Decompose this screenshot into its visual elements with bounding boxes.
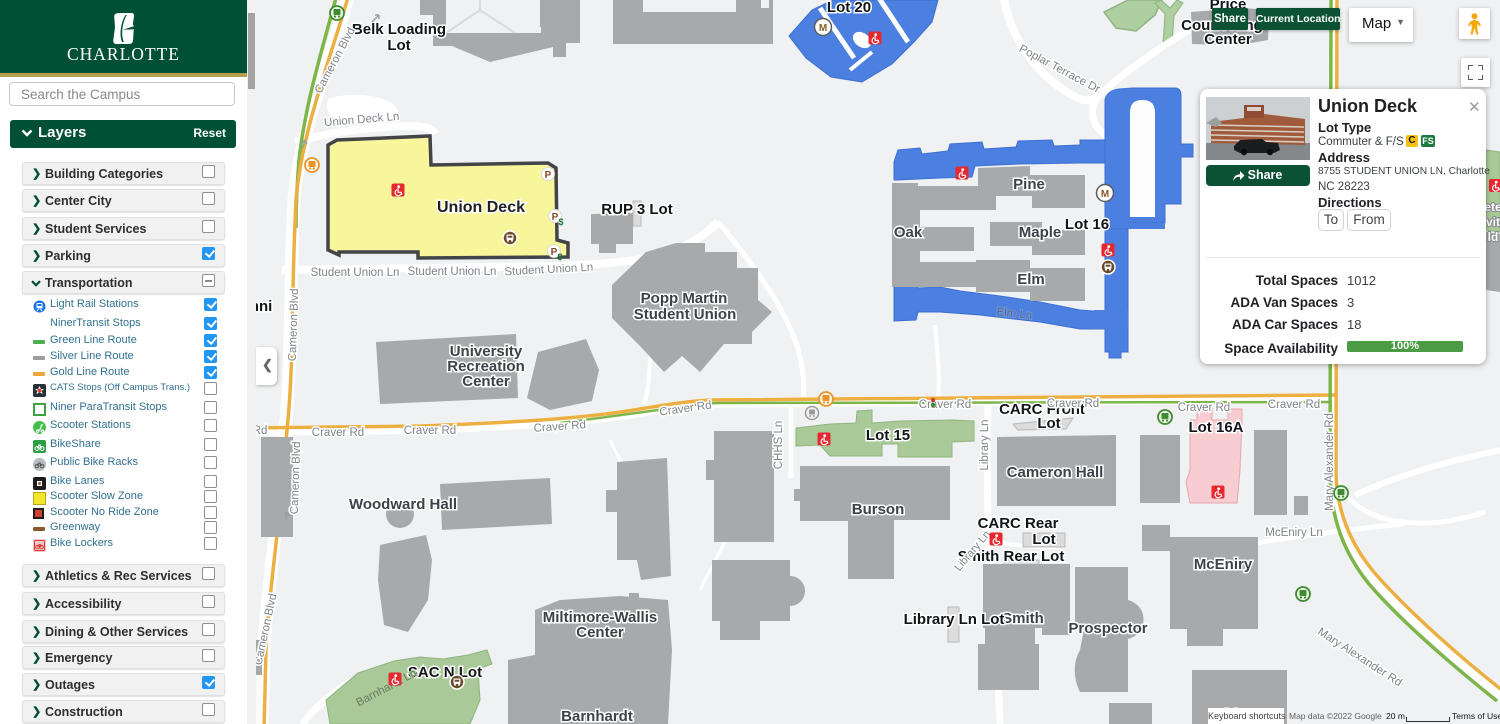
svg-text:Union Deck: Union Deck bbox=[437, 199, 525, 216]
svg-text:Belk Loading: Belk Loading bbox=[352, 21, 446, 38]
svg-text:Lot: Lot bbox=[1037, 415, 1060, 432]
svg-text:Craver Rd: Craver Rd bbox=[1047, 398, 1099, 410]
svg-text:Craver Rd: Craver Rd bbox=[1268, 399, 1320, 411]
svg-text:Cameron Blvd: Cameron Blvd bbox=[289, 441, 304, 514]
svg-text:ete: ete bbox=[1484, 200, 1500, 214]
svg-text:Craver Rd: Craver Rd bbox=[1178, 402, 1230, 414]
svg-text:Library Ln Lot: Library Ln Lot bbox=[904, 611, 1005, 628]
svg-text:Pine: Pine bbox=[1013, 176, 1045, 193]
svg-text:$: $ bbox=[557, 252, 562, 262]
svg-text:Center: Center bbox=[1204, 31, 1252, 48]
svg-text:Cameron Hall: Cameron Hall bbox=[1007, 464, 1104, 481]
svg-text:Lot 15: Lot 15 bbox=[866, 427, 910, 444]
svg-text:Lot 20: Lot 20 bbox=[827, 0, 871, 16]
svg-text:Elm: Elm bbox=[1017, 271, 1045, 288]
svg-text:Popp Martin: Popp Martin bbox=[641, 290, 728, 307]
svg-text:Student Union: Student Union bbox=[634, 306, 736, 323]
svg-text:McEniry: McEniry bbox=[1194, 556, 1253, 573]
svg-text:Lot 16A: Lot 16A bbox=[1188, 419, 1243, 436]
svg-text:M: M bbox=[819, 23, 827, 34]
svg-text:Lot: Lot bbox=[1032, 531, 1055, 548]
svg-text:Craver Rd: Craver Rd bbox=[312, 427, 364, 439]
svg-text:CHHS Ln: CHHS Ln bbox=[773, 421, 785, 470]
svg-text:ld: ld bbox=[1488, 230, 1499, 244]
svg-text:Cameron Blvd: Cameron Blvd bbox=[287, 288, 302, 361]
svg-text:Student Union Ln: Student Union Ln bbox=[311, 267, 400, 279]
svg-text:Lot: Lot bbox=[387, 37, 410, 54]
svg-text:Center: Center bbox=[576, 624, 624, 641]
svg-text:Smith: Smith bbox=[1002, 610, 1044, 627]
svg-text:RUP 3 Lot: RUP 3 Lot bbox=[601, 201, 672, 218]
svg-text:Oak: Oak bbox=[894, 224, 923, 241]
svg-text:McEniry Ln: McEniry Ln bbox=[1265, 527, 1323, 539]
svg-text:Craver Rd: Craver Rd bbox=[404, 425, 456, 437]
svg-text:Center: Center bbox=[462, 373, 510, 390]
svg-text:Lot 16: Lot 16 bbox=[1065, 216, 1109, 233]
svg-text:Maple: Maple bbox=[1019, 224, 1062, 241]
svg-text:CARC Rear: CARC Rear bbox=[978, 515, 1059, 532]
svg-text:vit: vit bbox=[1486, 215, 1500, 229]
svg-text:Library Ln: Library Ln bbox=[979, 419, 991, 470]
svg-text:Woodward Hall: Woodward Hall bbox=[349, 496, 457, 513]
svg-text:M: M bbox=[1101, 189, 1109, 200]
svg-text:Burson: Burson bbox=[852, 501, 905, 518]
svg-text:P: P bbox=[545, 170, 552, 181]
svg-text:Craver Rd: Craver Rd bbox=[919, 399, 971, 411]
svg-text:Student Union Ln: Student Union Ln bbox=[408, 266, 497, 278]
svg-text:Prospector: Prospector bbox=[1068, 620, 1147, 637]
svg-text:$: $ bbox=[558, 217, 563, 227]
svg-text:SAC N Lot: SAC N Lot bbox=[408, 664, 482, 681]
